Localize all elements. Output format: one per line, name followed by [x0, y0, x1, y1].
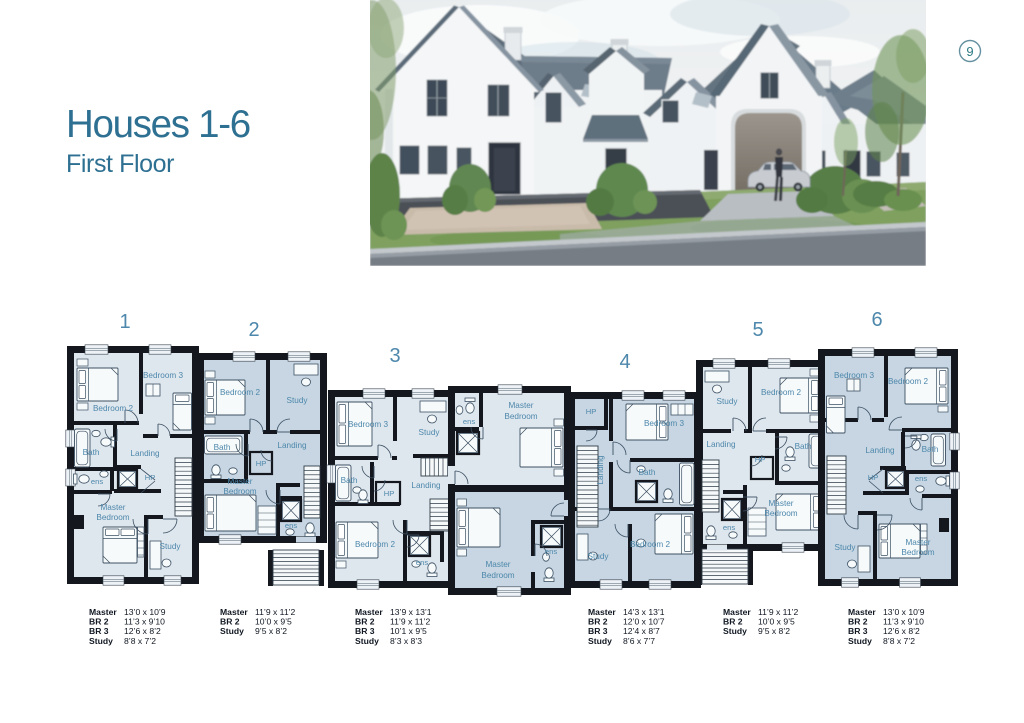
- svg-text:HP: HP: [384, 489, 395, 498]
- svg-text:HP: HP: [868, 473, 879, 482]
- svg-text:Bedroom: Bedroom: [901, 548, 934, 557]
- svg-text:Study: Study: [419, 428, 441, 437]
- svg-text:Study: Study: [835, 543, 857, 552]
- svg-text:Master: Master: [355, 607, 383, 617]
- svg-text:Landing: Landing: [596, 455, 605, 485]
- svg-text:Bedroom 3: Bedroom 3: [644, 419, 684, 428]
- svg-text:Study: Study: [717, 397, 739, 406]
- svg-text:BR 2: BR 2: [355, 617, 375, 627]
- svg-text:9: 9: [966, 44, 973, 59]
- svg-text:Bath: Bath: [214, 443, 231, 452]
- svg-text:Houses 1-6: Houses 1-6: [66, 103, 250, 146]
- svg-text:12’6 x 8’2: 12’6 x 8’2: [883, 626, 920, 636]
- svg-text:Landing: Landing: [130, 449, 160, 458]
- svg-text:HP: HP: [145, 473, 156, 482]
- svg-text:Bath: Bath: [922, 445, 939, 454]
- svg-text:BR 3: BR 3: [355, 626, 375, 636]
- svg-text:HP: HP: [586, 407, 597, 416]
- svg-text:Study: Study: [723, 626, 747, 636]
- svg-text:Bedroom 3: Bedroom 3: [834, 371, 874, 380]
- svg-text:Bedroom 2: Bedroom 2: [220, 388, 260, 397]
- svg-text:8’6 x 7’7: 8’6 x 7’7: [623, 636, 655, 646]
- svg-text:BR 3: BR 3: [89, 626, 109, 636]
- svg-text:8’3 x 8’3: 8’3 x 8’3: [390, 636, 422, 646]
- svg-text:Master: Master: [227, 477, 252, 486]
- svg-text:BR 2: BR 2: [220, 617, 240, 627]
- svg-text:10’0 x 9’5: 10’0 x 9’5: [255, 617, 292, 627]
- svg-text:3: 3: [389, 345, 400, 367]
- svg-text:Bedroom: Bedroom: [481, 571, 514, 580]
- svg-text:Bedroom 2: Bedroom 2: [888, 377, 928, 386]
- svg-text:Master: Master: [220, 607, 248, 617]
- svg-text:2: 2: [248, 319, 259, 341]
- svg-text:5: 5: [752, 319, 763, 341]
- svg-text:Study: Study: [848, 636, 872, 646]
- svg-text:First Floor: First Floor: [66, 150, 174, 178]
- svg-text:Master: Master: [508, 401, 533, 410]
- svg-text:4: 4: [619, 351, 630, 373]
- svg-text:Master: Master: [768, 499, 793, 508]
- svg-text:ens: ens: [416, 558, 428, 567]
- svg-text:Study: Study: [588, 636, 612, 646]
- svg-text:Bath: Bath: [795, 442, 812, 451]
- svg-text:Landing: Landing: [706, 440, 736, 449]
- svg-text:ens: ens: [91, 477, 103, 486]
- svg-text:BR 3: BR 3: [588, 626, 608, 636]
- svg-text:11’3 x 9’10: 11’3 x 9’10: [124, 617, 165, 627]
- svg-text:1: 1: [119, 311, 130, 333]
- svg-text:Master: Master: [905, 538, 930, 547]
- svg-text:Master: Master: [723, 607, 751, 617]
- svg-text:9’5 x 8’2: 9’5 x 8’2: [255, 626, 287, 636]
- svg-text:10’1 x 9’5: 10’1 x 9’5: [390, 626, 427, 636]
- svg-text:Master: Master: [100, 503, 125, 512]
- svg-text:HP: HP: [755, 455, 766, 464]
- svg-text:14’3 x 13’1: 14’3 x 13’1: [623, 607, 665, 617]
- svg-text:13’9 x 13’1: 13’9 x 13’1: [390, 607, 432, 617]
- svg-text:8’8 x 7’2: 8’8 x 7’2: [124, 636, 156, 646]
- svg-text:ens: ens: [915, 474, 927, 483]
- svg-text:Landing: Landing: [865, 446, 895, 455]
- svg-text:11’9 x 11’2: 11’9 x 11’2: [758, 607, 799, 617]
- svg-text:ens: ens: [463, 417, 475, 426]
- svg-text:Bedroom: Bedroom: [504, 412, 537, 421]
- svg-text:10’0 x 9’5: 10’0 x 9’5: [758, 617, 795, 627]
- svg-text:ens: ens: [545, 547, 557, 556]
- svg-text:Bath: Bath: [639, 468, 656, 477]
- svg-text:Bedroom 2: Bedroom 2: [761, 388, 801, 397]
- svg-text:11’9 x 11’2: 11’9 x 11’2: [390, 617, 431, 627]
- svg-text:Study: Study: [220, 626, 244, 636]
- svg-text:Bedroom: Bedroom: [223, 487, 256, 496]
- svg-text:HP: HP: [256, 459, 267, 468]
- svg-text:Landing: Landing: [411, 481, 441, 490]
- svg-text:13’0 x 10’9: 13’0 x 10’9: [124, 607, 166, 617]
- svg-text:ens: ens: [723, 523, 735, 532]
- svg-text:BR 2: BR 2: [848, 617, 868, 627]
- svg-text:Bedroom 2: Bedroom 2: [355, 540, 395, 549]
- svg-text:12’4 x 8’7: 12’4 x 8’7: [623, 626, 660, 636]
- svg-text:Bedroom: Bedroom: [764, 509, 797, 518]
- svg-text:13’0 x 10’9: 13’0 x 10’9: [883, 607, 925, 617]
- svg-text:Master: Master: [588, 607, 616, 617]
- svg-text:Bedroom 3: Bedroom 3: [143, 371, 183, 380]
- svg-text:Study: Study: [588, 552, 610, 561]
- svg-text:12’6 x 8’2: 12’6 x 8’2: [124, 626, 161, 636]
- svg-text:BR 2: BR 2: [89, 617, 109, 627]
- svg-text:Bedroom 2: Bedroom 2: [630, 540, 670, 549]
- svg-text:9’5 x 8’2: 9’5 x 8’2: [758, 626, 790, 636]
- svg-text:BR 2: BR 2: [723, 617, 743, 627]
- svg-text:Study: Study: [89, 636, 113, 646]
- svg-text:Master: Master: [89, 607, 117, 617]
- svg-text:Bath: Bath: [341, 476, 358, 485]
- svg-text:Study: Study: [355, 636, 379, 646]
- svg-text:8’8 x 7’2: 8’8 x 7’2: [883, 636, 915, 646]
- svg-text:BR 3: BR 3: [848, 626, 868, 636]
- svg-text:BR 2: BR 2: [588, 617, 608, 627]
- svg-text:Bedroom 3: Bedroom 3: [348, 420, 388, 429]
- svg-text:6: 6: [871, 309, 882, 331]
- svg-text:ens: ens: [285, 521, 297, 530]
- svg-text:Landing: Landing: [277, 441, 307, 450]
- svg-text:Bedroom 2: Bedroom 2: [93, 404, 133, 413]
- svg-text:Master: Master: [485, 560, 510, 569]
- svg-text:Bath: Bath: [83, 448, 100, 457]
- svg-text:Study: Study: [160, 542, 182, 551]
- svg-text:11’9 x 11’2: 11’9 x 11’2: [255, 607, 296, 617]
- svg-text:Bedroom: Bedroom: [96, 513, 129, 522]
- svg-text:Master: Master: [848, 607, 876, 617]
- svg-text:12’0 x 10’7: 12’0 x 10’7: [623, 617, 665, 627]
- svg-text:11’3 x 9’10: 11’3 x 9’10: [883, 617, 924, 627]
- svg-text:Study: Study: [287, 396, 309, 405]
